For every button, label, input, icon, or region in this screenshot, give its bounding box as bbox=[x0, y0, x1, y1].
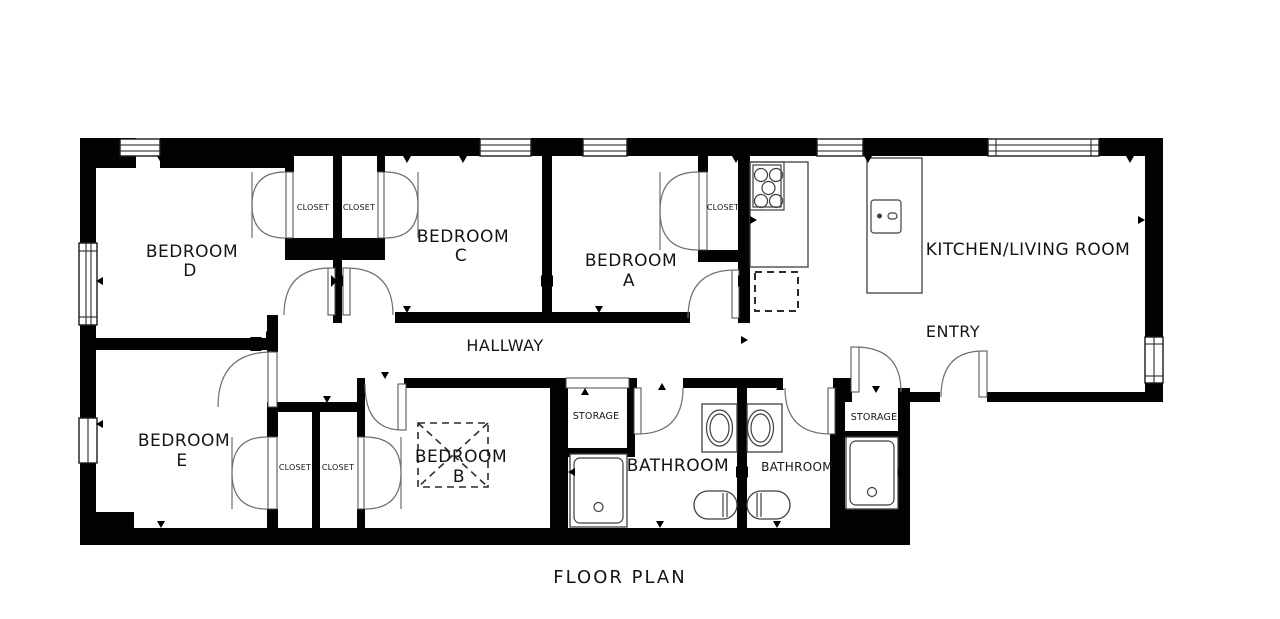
label-bedroom-c: BEDROOM bbox=[417, 227, 509, 247]
dimension-marker bbox=[1126, 156, 1134, 163]
door-bathroom-1 bbox=[634, 388, 683, 434]
door-closet-top-2 bbox=[378, 172, 418, 238]
bathroom-sink-1 bbox=[702, 404, 737, 452]
label-storage-1: STORAGE bbox=[573, 411, 620, 422]
window bbox=[79, 243, 97, 325]
wall-segment bbox=[80, 528, 910, 545]
dimension-marker bbox=[581, 388, 589, 395]
wall-segment bbox=[627, 138, 817, 156]
door-closet-a bbox=[660, 172, 707, 250]
wall-segment bbox=[80, 138, 96, 243]
label-bedroom-c-letter: C bbox=[455, 246, 467, 266]
door-bedroom-a bbox=[688, 270, 739, 318]
wall-segment bbox=[357, 378, 365, 437]
dimension-marker bbox=[773, 521, 781, 528]
label-bedroom-d-letter: D bbox=[183, 261, 197, 281]
door-bedroom-e bbox=[218, 352, 277, 407]
label-closet-bottom-2: CLOSET bbox=[322, 463, 354, 472]
wall-segment bbox=[683, 378, 783, 388]
kitchen-island bbox=[867, 158, 922, 293]
door-bathroom-2 bbox=[785, 388, 835, 434]
windows bbox=[79, 139, 1163, 463]
label-kitchen-living-room: KITCHEN/LIVING ROOM bbox=[926, 240, 1131, 260]
dimension-marker bbox=[656, 521, 664, 528]
label-bedroom-e-letter: E bbox=[176, 451, 187, 471]
door-closet-top-1 bbox=[252, 172, 293, 238]
window bbox=[817, 139, 863, 156]
dimension-marker bbox=[403, 156, 411, 163]
window bbox=[1145, 337, 1163, 383]
window bbox=[583, 139, 627, 156]
label-bathroom-2: BATHROOM bbox=[761, 460, 833, 474]
dimension-marker bbox=[459, 156, 467, 163]
window bbox=[79, 418, 97, 463]
dimension-marker bbox=[403, 306, 411, 313]
door-storage-1 bbox=[566, 378, 629, 388]
wall-segment bbox=[1145, 138, 1163, 337]
dimension-marker bbox=[1138, 216, 1145, 224]
door-bedroom-c bbox=[343, 268, 393, 315]
wall-segment bbox=[267, 509, 278, 528]
window-wide bbox=[988, 139, 1099, 156]
wall-segment bbox=[80, 325, 96, 418]
wall-bathroom-divider bbox=[737, 388, 747, 528]
label-closet-bottom-1: CLOSET bbox=[279, 463, 311, 472]
wall-segment bbox=[377, 150, 385, 172]
door-closet-bottom-2 bbox=[358, 437, 401, 509]
dimension-marker bbox=[595, 306, 603, 313]
door-bedroom-d bbox=[284, 268, 335, 315]
dishwasher-dashed-box bbox=[755, 272, 798, 311]
window bbox=[480, 139, 531, 156]
window bbox=[120, 139, 160, 156]
wall-segment bbox=[987, 392, 1163, 402]
dimension-marker bbox=[658, 383, 666, 390]
wall-segment bbox=[833, 378, 852, 402]
door-storage-2 bbox=[851, 347, 901, 392]
dimension-marker bbox=[157, 521, 165, 528]
label-closet-a: CLOSET bbox=[707, 203, 739, 212]
toilet-icon bbox=[694, 491, 737, 519]
wall-bedroom-a-right bbox=[738, 150, 750, 323]
wall-hallway-bottom bbox=[404, 378, 566, 388]
wall-segment bbox=[698, 150, 708, 172]
door-closet-bottom-1 bbox=[232, 437, 277, 509]
dimension-marker bbox=[381, 372, 389, 379]
label-bedroom-a-letter: A bbox=[623, 271, 635, 291]
wall-pier bbox=[160, 138, 285, 168]
wall-segment bbox=[898, 388, 910, 545]
wall-closet-divider bbox=[312, 402, 320, 528]
toilet-icon bbox=[747, 491, 790, 519]
wall-segment bbox=[357, 509, 365, 528]
shower-icon bbox=[570, 454, 627, 527]
wall-bedroom-c-a-divider bbox=[542, 150, 552, 318]
wall-segment bbox=[629, 378, 637, 388]
label-bedroom-b: BEDROOM bbox=[415, 447, 507, 467]
wall-segment bbox=[267, 402, 360, 412]
door-bedroom-b bbox=[365, 384, 406, 430]
floor-plan-canvas: BEDROOM D BEDROOM C BEDROOM A BEDROOM E … bbox=[0, 0, 1280, 619]
dimension-marker bbox=[323, 396, 331, 403]
label-storage-2: STORAGE bbox=[851, 412, 898, 423]
dimension-marker bbox=[741, 336, 748, 344]
kitchen-counter bbox=[750, 162, 808, 267]
label-bathroom-1: BATHROOM bbox=[627, 456, 729, 476]
wall-segment bbox=[863, 138, 988, 156]
label-hallway: HALLWAY bbox=[466, 336, 543, 355]
shower-icon bbox=[846, 437, 898, 509]
floor-plan-drawing: BEDROOM D BEDROOM C BEDROOM A BEDROOM E … bbox=[0, 0, 1280, 619]
label-bedroom-a: BEDROOM bbox=[585, 251, 677, 271]
label-bedroom-d: BEDROOM bbox=[146, 242, 238, 262]
dimension-marker bbox=[872, 386, 880, 393]
wall-bedroom-d-e-divider bbox=[95, 338, 268, 350]
wall-segment bbox=[285, 238, 385, 260]
label-entry: ENTRY bbox=[926, 322, 980, 341]
label-bedroom-b-letter: B bbox=[453, 467, 465, 487]
wall-segment bbox=[531, 138, 583, 156]
label-bedroom-e: BEDROOM bbox=[138, 431, 230, 451]
label-closet-top-2: CLOSET bbox=[343, 203, 375, 212]
plan-title: FLOOR PLAN bbox=[553, 567, 686, 588]
bathroom-sink-2 bbox=[747, 404, 782, 452]
door-entry-front bbox=[941, 351, 987, 397]
wall-segment bbox=[285, 150, 294, 172]
label-closet-top-1: CLOSET bbox=[297, 203, 329, 212]
